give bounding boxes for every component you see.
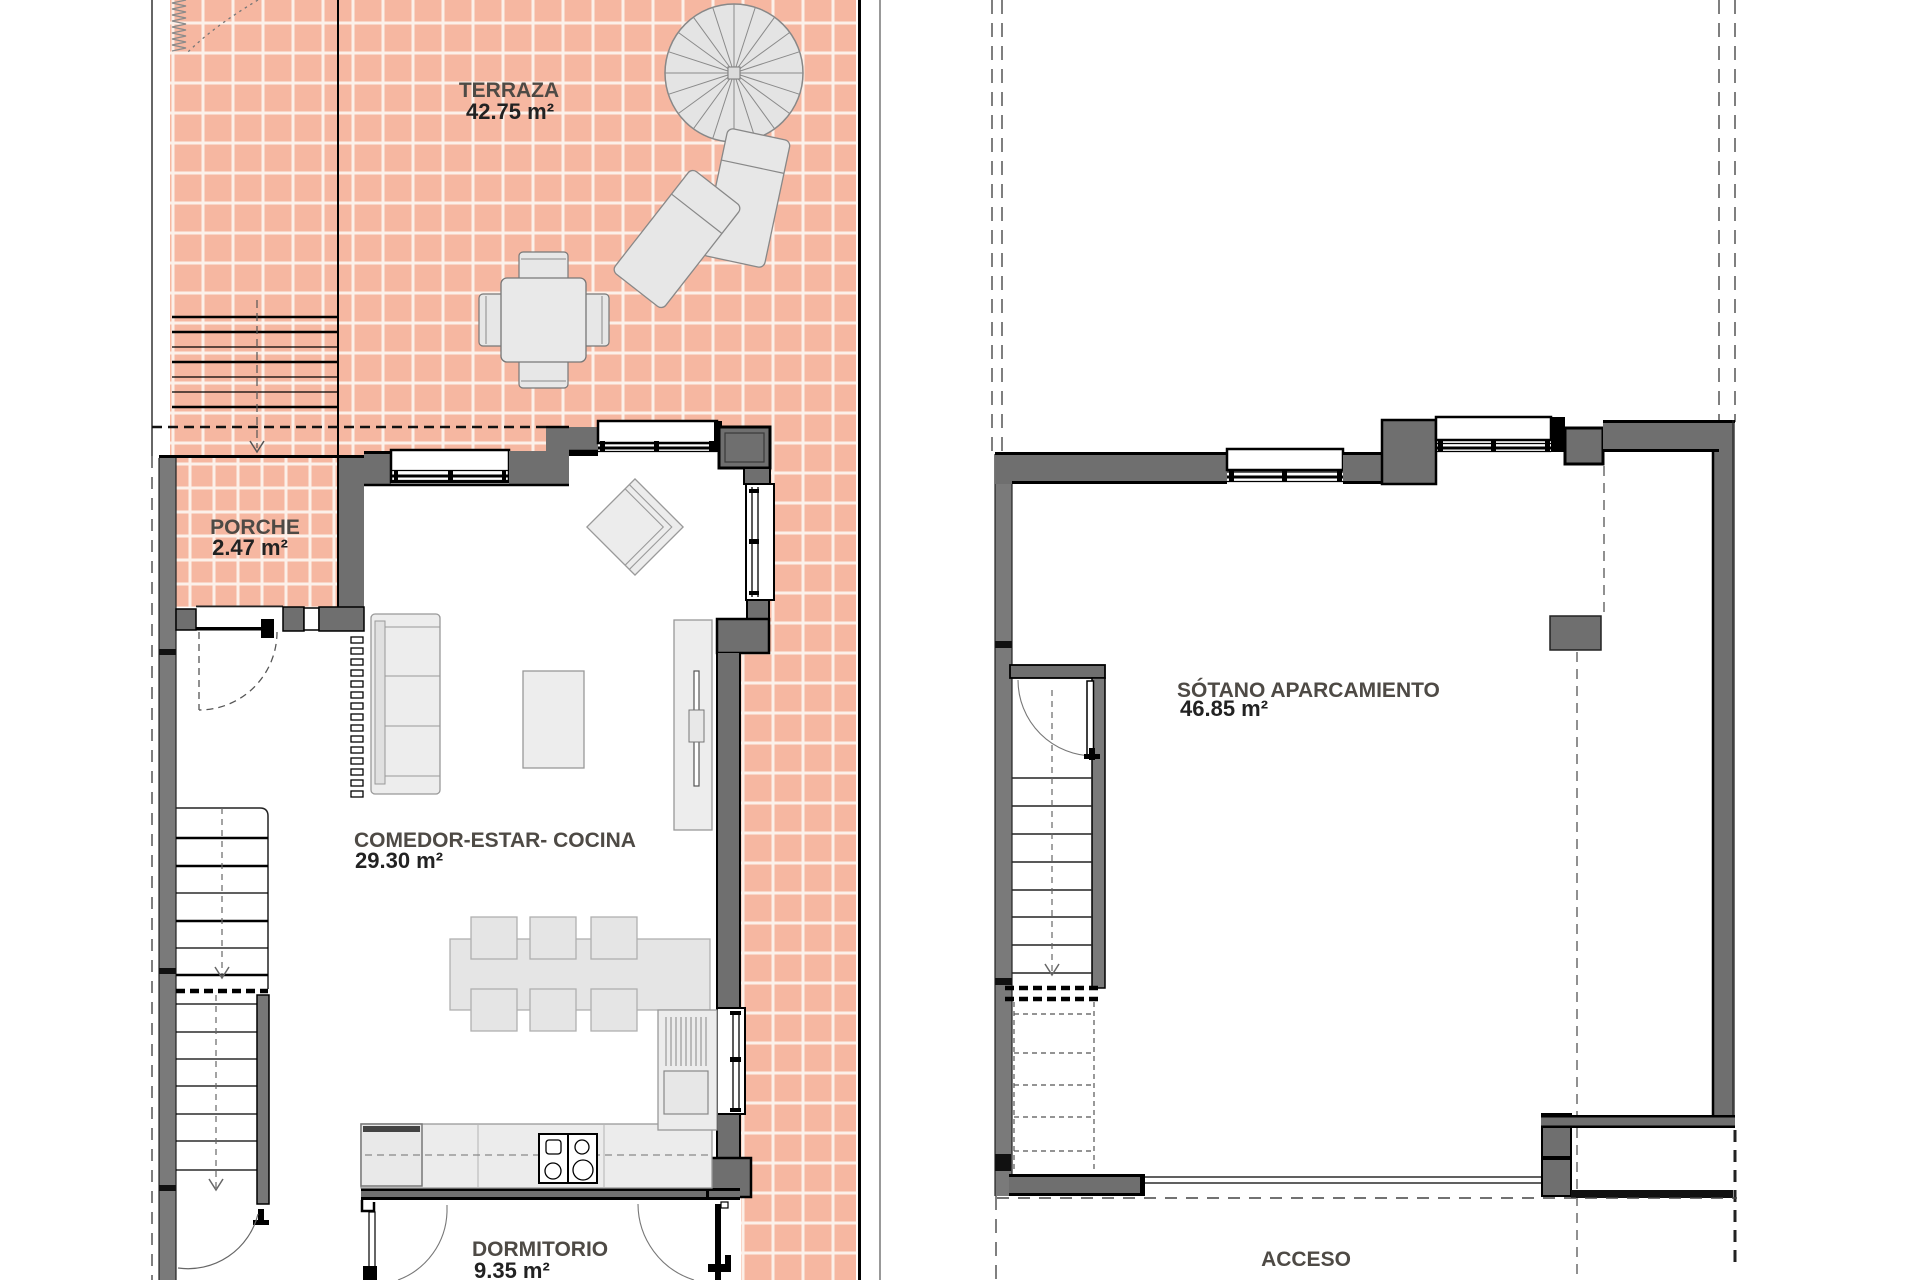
svg-text:42.75 m²: 42.75 m² (466, 99, 554, 124)
svg-text:ACCESO: ACCESO (1261, 1248, 1351, 1271)
svg-text:9.35 m²: 9.35 m² (474, 1258, 550, 1280)
svg-text:46.85 m²: 46.85 m² (1180, 696, 1268, 721)
svg-text:2.47 m²: 2.47 m² (212, 535, 288, 560)
svg-text:29.30 m²: 29.30 m² (355, 848, 443, 873)
